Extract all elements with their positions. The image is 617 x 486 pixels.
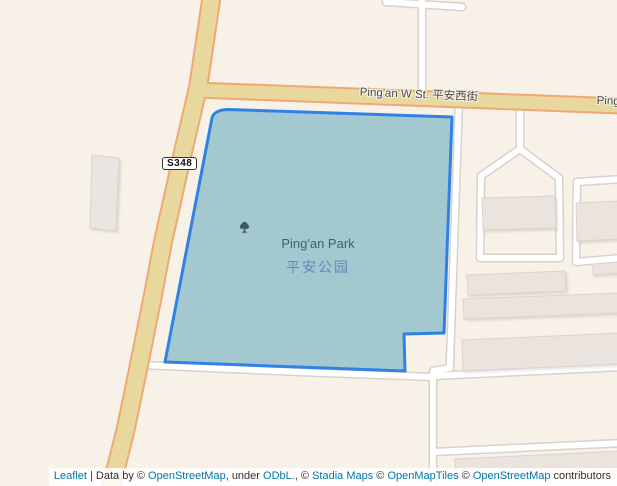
openmaptiles-link[interactable]: OpenMapTiles	[387, 470, 458, 482]
openstreetmap-link[interactable]: OpenStreetMap	[148, 470, 226, 482]
attribution-text: | Data by ©	[87, 470, 148, 482]
building-strip-3	[462, 333, 617, 371]
building-strip-4	[593, 262, 617, 275]
odbl-link[interactable]: ODbL.	[263, 470, 295, 482]
leaflet-link[interactable]: Leaflet	[54, 470, 87, 482]
map-canvas[interactable]: S348 Ping'an W St. 平安西街 Ping'an W St. 平安…	[0, 0, 617, 486]
route-shield-s348: S348	[162, 157, 197, 170]
building-block-2	[576, 201, 617, 241]
attribution-text: , under	[226, 470, 263, 482]
attribution-text: ©	[459, 470, 473, 482]
openstreetmap-link-2[interactable]: OpenStreetMap	[473, 470, 551, 482]
building-west	[90, 155, 119, 231]
map-tiles	[0, 0, 617, 486]
building-strip-1	[467, 271, 566, 295]
attribution-text: contributors	[550, 470, 611, 482]
building-block-1	[482, 196, 556, 230]
attribution-text: , ©	[295, 470, 312, 482]
park-polygon[interactable]	[165, 110, 452, 372]
building-strip-2	[463, 293, 617, 319]
attribution-bar: Leaflet | Data by © OpenStreetMap, under…	[49, 468, 617, 486]
stadia-maps-link[interactable]: Stadia Maps	[312, 470, 373, 482]
attribution-text: ©	[373, 470, 387, 482]
